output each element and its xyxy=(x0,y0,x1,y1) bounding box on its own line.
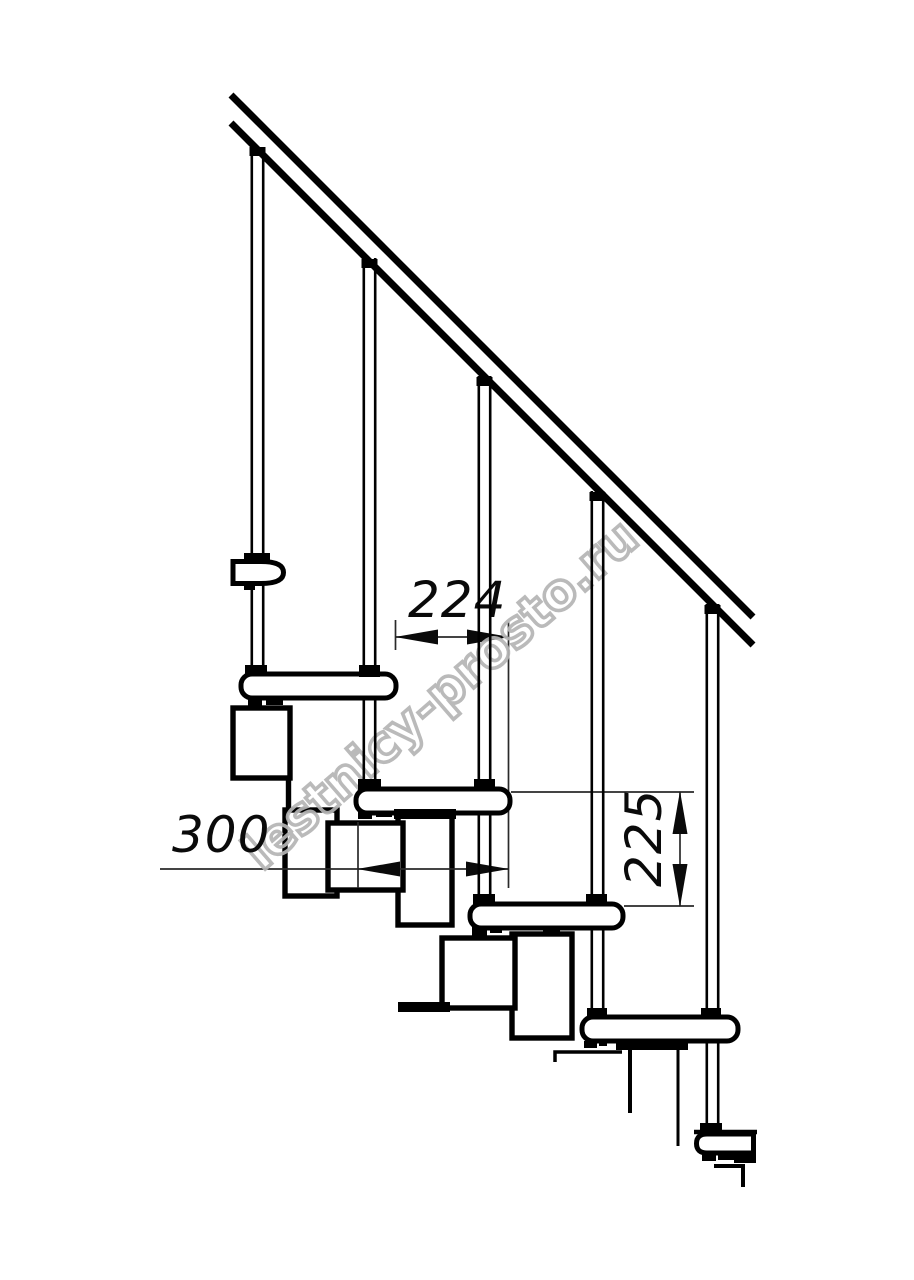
under-clamp xyxy=(599,1041,607,1046)
under-clamp xyxy=(248,697,262,707)
under-clamp xyxy=(584,1041,597,1048)
handrail-bottom-line xyxy=(231,123,753,645)
arrowhead-left-icon xyxy=(395,630,438,645)
tread-collar xyxy=(358,779,381,791)
arrowhead-up-icon xyxy=(673,791,688,834)
tread-collar xyxy=(587,1008,607,1019)
tread-collar xyxy=(700,1123,722,1134)
tread-collar xyxy=(245,665,267,676)
tread-collar xyxy=(473,894,495,906)
under-clamp xyxy=(734,1152,756,1163)
tread xyxy=(582,1017,738,1041)
baluster-1 xyxy=(252,148,263,676)
baluster-5 xyxy=(707,604,718,1133)
baluster-2 xyxy=(364,258,375,791)
dimension-depth-label: 300 xyxy=(172,806,270,864)
handrail xyxy=(231,95,753,645)
tread-clamp xyxy=(244,583,255,590)
dimension-run-label: 224 xyxy=(408,571,506,629)
tread-collar xyxy=(586,894,607,906)
arrowhead-right-icon xyxy=(466,862,509,877)
staircase-drawing-page: lestnicy-prosto.ru 224 300 225 xyxy=(0,0,914,1280)
tread-bottom xyxy=(697,1134,754,1153)
tread xyxy=(470,904,623,928)
tread-collar xyxy=(474,779,495,791)
tread-collar xyxy=(359,665,380,677)
module-box xyxy=(328,823,403,890)
module-box xyxy=(233,708,290,778)
under-clamp xyxy=(472,927,487,936)
module-box xyxy=(442,938,515,1008)
tread xyxy=(241,674,396,698)
break-line xyxy=(714,1166,743,1187)
under-clamp xyxy=(376,811,392,817)
module-clamp-band xyxy=(394,809,456,819)
under-clamp xyxy=(266,697,283,705)
under-clamp xyxy=(358,811,372,819)
cutoff-lines xyxy=(555,1050,743,1187)
arrowhead-down-icon xyxy=(673,864,688,907)
under-clamp xyxy=(702,1152,716,1161)
under-clamp xyxy=(490,927,502,933)
module-box xyxy=(512,934,572,1038)
module-clamp-band xyxy=(616,1041,688,1050)
module-clamp-band xyxy=(398,1002,450,1012)
staircase-drawing: lestnicy-prosto.ru 224 300 225 xyxy=(0,0,914,1280)
under-clamp xyxy=(718,1152,734,1160)
dimension-rise-label: 225 xyxy=(615,789,673,887)
break-line xyxy=(555,1052,622,1062)
under-clamp xyxy=(543,927,560,934)
tread-top xyxy=(233,562,284,584)
tread-collar xyxy=(244,553,270,563)
tread-collar xyxy=(701,1008,721,1019)
handrail-top-line xyxy=(231,95,753,617)
